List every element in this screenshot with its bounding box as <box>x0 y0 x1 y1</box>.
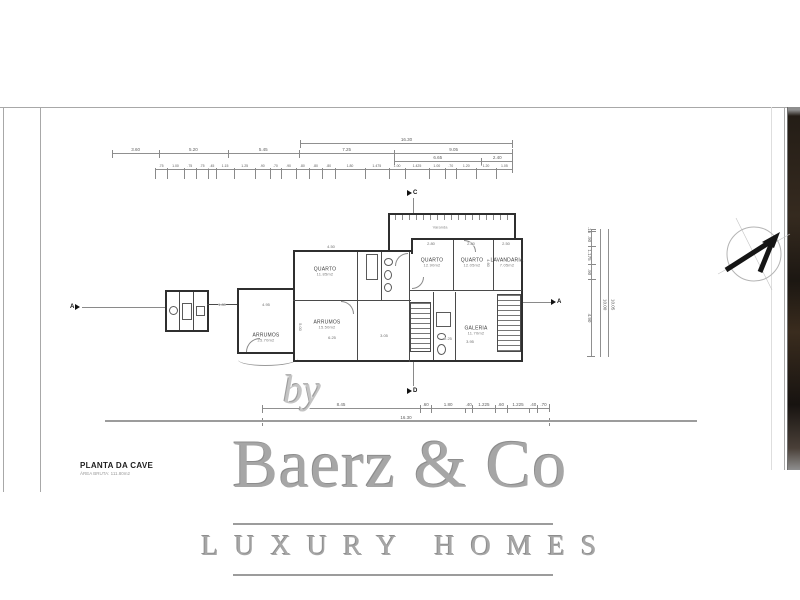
dim-segment: 1.05 <box>496 169 513 170</box>
wall <box>388 213 390 252</box>
dim-label: 10.05 <box>610 299 615 310</box>
dim-label: 1.80 <box>346 165 355 169</box>
dim-segment: 4.90 <box>591 279 592 357</box>
section-marker-d: D <box>407 388 417 394</box>
interior-dim-label: 2.25 <box>444 337 452 341</box>
dim-segment: .70 <box>445 169 456 170</box>
dim-top-total: 16.30 <box>300 143 513 144</box>
bathtub-fixture <box>366 254 378 280</box>
wall <box>293 360 523 362</box>
dim-right-total-2: 10.05 <box>608 229 609 357</box>
dim-label: .80 <box>299 165 306 169</box>
dim-label: 10.00 <box>602 299 607 310</box>
section-marker-label: A <box>557 299 561 305</box>
dim-label: 1.225 <box>477 403 490 408</box>
dim-segment: 9.05 <box>394 153 513 154</box>
dim-label: 8.45 <box>336 403 347 408</box>
dim-right-total-1: 10.00 <box>600 229 601 357</box>
drawing-subtitle: ÁREA BRUTA: 111.80m2 <box>80 471 130 476</box>
dim-label: 1.00 <box>432 165 441 169</box>
dim-label: 1.475 <box>371 165 382 169</box>
dim-label: .70 <box>272 165 279 169</box>
dim-label: 1.175 <box>587 248 592 261</box>
dim-segment: .80 <box>322 169 335 170</box>
dim-segment: 7.25 <box>299 153 394 154</box>
section-flag-icon <box>551 299 556 305</box>
dim-segment: .90 <box>255 169 270 170</box>
dim-label: 1.15 <box>221 165 230 169</box>
dim-label: .45 <box>208 165 215 169</box>
wall <box>433 292 434 360</box>
wall <box>237 352 295 354</box>
dim-segment: 1.80 <box>335 169 364 170</box>
dim-label: 1.00 <box>171 165 180 169</box>
watermark-by: by <box>283 366 321 413</box>
dim-segment: .40 <box>529 408 536 409</box>
room-area: 25.70m2 <box>253 339 280 344</box>
dim-segment: 1.00 <box>429 169 445 170</box>
dim-label: 1.00 <box>393 165 402 169</box>
dim-segment: .90 <box>591 264 592 278</box>
dim-label: 1.225 <box>511 403 524 408</box>
dim-segment: 1.25 <box>234 169 254 170</box>
interior-dim-label: 1.80 <box>218 303 226 307</box>
wall <box>237 288 295 290</box>
room-label: ARRUMOS25.70m2 <box>253 333 280 344</box>
dim-chain-top-detail: .751.00.75.75.451.151.25.90.70.90.80.80.… <box>155 169 513 170</box>
dim-label: .60 <box>497 403 505 408</box>
floor-plan-page: { "sheet": { "title": "PLANTA DA CAVE", … <box>0 0 800 600</box>
dim-label: .90 <box>259 165 266 169</box>
dim-segment: 1.225 <box>507 408 530 409</box>
equipment-fixture <box>196 306 205 316</box>
interior-dim-label: 4.60 <box>486 259 490 267</box>
wall <box>453 240 454 290</box>
dim-label: 5.20 <box>188 148 199 153</box>
dim-label: 1.425 <box>412 165 423 169</box>
room-label: GALERIA11.70m2 <box>464 326 487 337</box>
dim-label: 1.20 <box>462 165 471 169</box>
dim-label: .90 <box>587 234 592 242</box>
interior-dim-label: 2.50 <box>502 242 510 246</box>
dim-label: 1.20 <box>482 165 491 169</box>
room-label: QUARTO11.85m2 <box>314 267 336 278</box>
dim-segment: .90 <box>281 169 296 170</box>
toilet-fixture <box>384 270 392 280</box>
water-tank-fixture <box>182 303 192 320</box>
dim-segment: 1.175 <box>591 246 592 265</box>
dim-segment: .70 <box>270 169 281 170</box>
dim-label: .60 <box>422 403 430 408</box>
section-line-a-left <box>82 307 165 308</box>
dim-segment: 1.20 <box>476 169 496 170</box>
toilet-fixture <box>437 344 446 355</box>
dim-label: 1.25 <box>240 165 249 169</box>
room-area: 11.85m2 <box>314 273 336 278</box>
dim-segment: 6.65 <box>394 161 481 162</box>
wall <box>165 290 209 292</box>
dim-label: 3.60 <box>130 148 141 153</box>
dim-segment: .80 <box>309 169 322 170</box>
dim-label: 2.40 <box>492 156 503 161</box>
room-label: QUARTO12.90m2 <box>421 258 443 269</box>
dim-segment: .80 <box>296 169 309 170</box>
boiler-fixture <box>169 306 178 315</box>
wall <box>237 288 239 354</box>
dim-segment: .75 <box>155 169 167 170</box>
section-marker-label: D <box>413 388 417 394</box>
dim-segment: 1.15 <box>216 169 235 170</box>
interior-dim-label: 4.95 <box>262 303 270 307</box>
dim-segment: 1.00 <box>167 169 183 170</box>
wall <box>357 300 358 360</box>
room-label: ARRUMOS15.50m2 <box>314 320 341 331</box>
room-label: LAVANDARIA7.05m2 <box>491 258 524 269</box>
section-flag-icon <box>75 304 80 310</box>
dim-segment: 1.20 <box>456 169 476 170</box>
wall <box>411 240 413 254</box>
wall <box>293 300 411 301</box>
door-swing-arc <box>412 277 424 289</box>
watermark-rule-mid <box>233 523 553 525</box>
door-swing-arc <box>341 301 354 314</box>
section-marker-label: C <box>413 190 417 196</box>
dim-segment: .45 <box>208 169 215 170</box>
section-marker-a-right: A <box>551 299 561 305</box>
room-area: 7.05m2 <box>491 264 524 269</box>
bidet-fixture <box>384 283 392 292</box>
dim-segment: .60 <box>495 408 506 409</box>
wall <box>165 330 209 332</box>
dim-segment: .75 <box>184 169 196 170</box>
watermark-rule-bottom <box>233 574 553 576</box>
dim-label: .75 <box>158 165 165 169</box>
wall <box>388 213 516 215</box>
dim-label: 1.05 <box>500 165 509 169</box>
wall <box>207 290 209 332</box>
dim-segment: 2.40 <box>481 161 513 162</box>
dim-segment: 1.225 <box>472 408 495 409</box>
dim-label: 5.45 <box>258 148 269 153</box>
section-line-a-right <box>523 302 551 303</box>
dim-label: 6.65 <box>432 156 443 161</box>
dim-label: .75 <box>199 165 206 169</box>
dim-label: .90 <box>285 165 292 169</box>
wall <box>165 290 167 332</box>
dim-label: .90 <box>587 268 592 276</box>
room-area: 15.50m2 <box>314 326 341 331</box>
dim-segment: .90 <box>591 231 592 245</box>
interior-dim-label: 3.05 <box>380 334 388 338</box>
wall <box>409 252 410 362</box>
dim-segment: .75 <box>196 169 208 170</box>
room-area: 11.70m2 <box>464 332 487 337</box>
dim-segment: 1.00 <box>389 169 405 170</box>
wall <box>514 213 516 240</box>
dim-chain-right: .15.901.175.904.90 <box>591 229 592 357</box>
dim-chain-top: 3.605.205.457.259.05 <box>112 153 513 154</box>
section-marker-a-left: A <box>70 304 80 310</box>
interior-dim-label: 2.80 <box>467 242 475 246</box>
dim-segment: .60 <box>420 408 431 409</box>
dim-segment: 5.45 <box>228 153 300 154</box>
section-marker-c: C <box>407 190 417 196</box>
sheet-inner-left-border <box>40 107 41 492</box>
dim-segment: .40 <box>465 408 472 409</box>
dim-label: 9.05 <box>448 148 459 153</box>
wall <box>409 290 522 291</box>
drawing-title: PLANTA DA CAVE <box>80 461 153 470</box>
wall <box>293 250 413 252</box>
wall <box>357 252 358 302</box>
wall <box>521 238 523 362</box>
dim-segment: 3.60 <box>112 153 159 154</box>
terrace-railing <box>388 215 516 220</box>
dim-label: 16.30 <box>400 138 413 143</box>
interior-dim-label: 6.25 <box>328 336 336 340</box>
dim-chain-top-sub: 6.652.40 <box>394 161 513 162</box>
interior-dim-label: 3.95 <box>466 340 474 344</box>
dim-segment: 1.80 <box>431 408 465 409</box>
section-marker-label: A <box>70 304 74 310</box>
watermark-tagline: LUXURY HOMES <box>201 531 612 563</box>
room-area: 12.05m2 <box>461 264 483 269</box>
dim-label: .80 <box>312 165 319 169</box>
room-label: QUARTO12.05m2 <box>461 258 483 269</box>
section-flag-icon <box>407 388 412 394</box>
dim-segment: 5.20 <box>159 153 227 154</box>
dim-segment: .70 <box>537 408 550 409</box>
wall <box>293 250 295 362</box>
watermark-rule-top <box>105 420 697 422</box>
wall <box>455 292 456 360</box>
wall <box>179 292 180 330</box>
stairs <box>497 294 521 352</box>
interior-dim-label: 4.50 <box>327 245 335 249</box>
sheet-left-border <box>3 107 4 492</box>
dim-label: .70 <box>539 403 547 408</box>
sheet-top-border <box>0 107 787 108</box>
wall <box>381 252 382 300</box>
sink-fixture <box>384 258 393 266</box>
curved-garden-wall <box>238 352 298 366</box>
watermark-brand: Baerz & Co <box>233 425 568 504</box>
dim-segment: 1.475 <box>365 169 389 170</box>
dim-label: .75 <box>186 165 193 169</box>
interior-dim-label: 2.80 <box>427 242 435 246</box>
section-flag-icon <box>407 190 412 196</box>
dim-segment: 1.425 <box>405 169 428 170</box>
stairs <box>410 302 431 352</box>
wall <box>193 292 194 330</box>
dim-label: .80 <box>325 165 332 169</box>
section-line-c <box>413 198 414 214</box>
north-arrow-icon <box>716 216 792 292</box>
dim-label: 4.90 <box>587 313 592 324</box>
shower-fixture <box>436 312 451 327</box>
dim-label: 7.25 <box>341 148 352 153</box>
section-line-d <box>413 362 414 386</box>
room-area: 12.90m2 <box>421 264 443 269</box>
dim-label: 1.80 <box>443 403 454 408</box>
interior-dim-label: 5.00 <box>298 323 302 331</box>
door-swing-arc <box>395 253 408 266</box>
dim-label: .70 <box>447 165 454 169</box>
plan-annotation: Varanda <box>433 225 448 230</box>
